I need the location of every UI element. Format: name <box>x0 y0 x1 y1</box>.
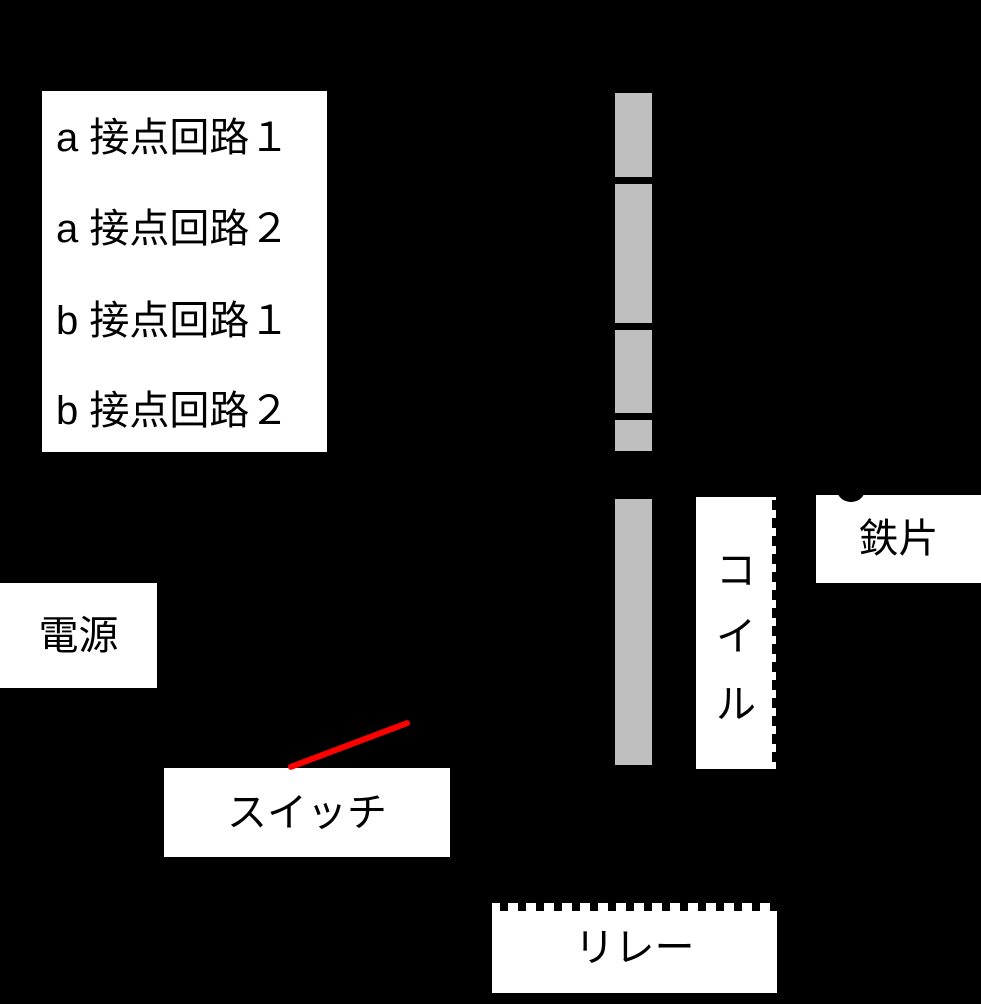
relay-label-box: リレー <box>492 903 777 993</box>
iron-piece-arc-mark <box>837 477 865 502</box>
contact-circuit-label-b2: b 接点回路２ <box>56 390 289 432</box>
armature-bar-segment-2 <box>615 184 652 323</box>
armature-bar-segment-1 <box>615 93 652 177</box>
contact-circuit-label-a1: a 接点回路１ <box>56 117 289 159</box>
relay-label: リレー <box>575 927 695 969</box>
switch-label-box: スイッチ <box>164 768 450 857</box>
switch-label: スイッチ <box>227 792 387 834</box>
iron-piece-label: 鉄片 <box>859 518 939 560</box>
coil-label-char-2: イ <box>696 616 776 658</box>
contact-circuit-label-a2: a 接点回路２ <box>56 208 289 250</box>
relay-boundary-dashed-line-horizontal <box>500 897 780 911</box>
switch-lever-line <box>287 719 411 770</box>
power-label-box: 電源 <box>0 583 157 688</box>
coil-label-box: コ イ ル <box>696 497 776 769</box>
armature-bar-segment-3 <box>615 330 652 413</box>
power-label: 電源 <box>39 615 119 657</box>
coil-label-char-1: コ <box>696 550 776 592</box>
coil-label-char-3: ル <box>696 684 776 726</box>
contact-circuits-label-box: a 接点回路１ a 接点回路２ b 接点回路１ b 接点回路２ <box>42 91 327 452</box>
iron-piece-label-box: 鉄片 <box>816 495 981 583</box>
contact-circuit-label-b1: b 接点回路１ <box>56 300 289 342</box>
relay-boundary-dashed-line-vertical <box>772 500 780 770</box>
relay-diagram-canvas: a 接点回路１ a 接点回路２ b 接点回路１ b 接点回路２ コ イ ル 鉄片… <box>0 0 981 1004</box>
armature-bar-segment-4 <box>615 420 652 451</box>
coil-core-bar <box>615 499 652 765</box>
